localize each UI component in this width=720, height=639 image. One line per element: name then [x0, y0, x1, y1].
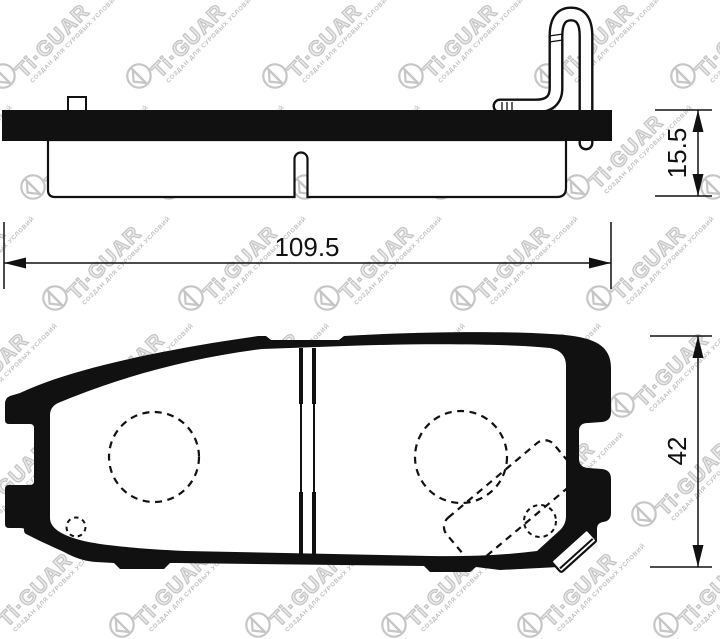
catalog-drawing-page: { "document": { "type": "brake-pad-techn… — [0, 0, 720, 574]
arrow-right-icon — [589, 258, 611, 269]
dim-height-label: 42 — [662, 437, 692, 466]
backing-plate-side — [2, 110, 612, 141]
dim-thickness: 15.5 — [655, 110, 712, 196]
arrow-up-icon — [693, 110, 704, 132]
side-view — [2, 14, 612, 197]
arrow-down-icon — [693, 545, 704, 567]
dim-length: 109.5 — [4, 222, 611, 289]
arrow-down-icon — [693, 174, 704, 196]
dim-thickness-label: 15.5 — [662, 128, 692, 179]
dim-length-label: 109.5 — [274, 232, 339, 262]
friction-material-side — [48, 140, 566, 197]
arrow-up-icon — [693, 336, 704, 358]
plate-tab — [68, 97, 86, 111]
dim-height: 42 — [650, 336, 712, 567]
face-view — [5, 332, 611, 573]
technical-drawing: 15.5 109.5 — [0, 0, 720, 574]
arrow-left-icon — [4, 258, 26, 269]
